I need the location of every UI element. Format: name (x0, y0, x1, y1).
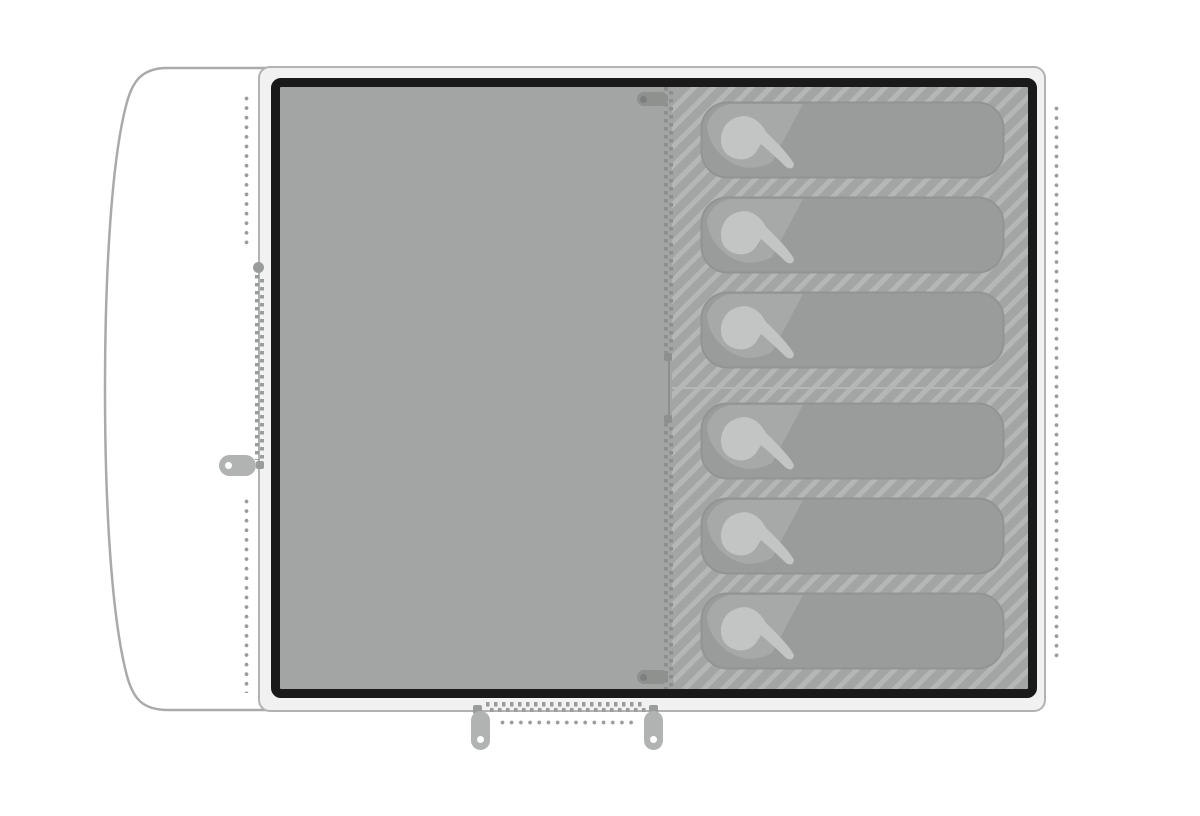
sleeping-bag-icon (700, 402, 1005, 480)
bedroom-divider (672, 387, 1028, 389)
left-zipper-teeth (255, 275, 264, 460)
sleeping-bag-icon (700, 592, 1005, 670)
zipper-node-icon (253, 262, 264, 273)
pull-eyelet (477, 736, 484, 743)
zipper-pull-icon (644, 711, 663, 750)
zipper-pull-icon (471, 711, 490, 750)
zipper-stop (256, 461, 264, 469)
pull-eyelet (650, 736, 657, 743)
living-area (280, 87, 1028, 689)
tent-floorplan-diagram (0, 0, 1200, 816)
seam-dots-left-bottom (243, 497, 250, 693)
zipper-pull-icon (637, 92, 668, 106)
sleeping-bag-icon (700, 196, 1005, 274)
groundsheet-border (271, 78, 1037, 698)
zipper-stop (664, 415, 672, 423)
pull-eyelet (640, 96, 647, 103)
porch-panel-outline (92, 58, 267, 720)
bottom-zipper-teeth (486, 702, 646, 712)
seam-dots-right (1053, 104, 1060, 662)
pull-eyelet (640, 674, 647, 681)
zipper-pull-icon (219, 455, 256, 476)
sleeping-bag-icon (700, 497, 1005, 575)
sleeping-bag-icon (700, 291, 1005, 369)
pull-eyelet (225, 462, 232, 469)
zipper-pull-icon (637, 670, 668, 684)
zipper-seam (668, 359, 670, 415)
inner-zipper-teeth (664, 423, 673, 689)
sleeping-bag-icon (700, 101, 1005, 179)
inner-zipper-teeth (664, 87, 673, 353)
seam-dots-bottom (498, 719, 636, 726)
seam-dots-left-top (243, 94, 250, 248)
